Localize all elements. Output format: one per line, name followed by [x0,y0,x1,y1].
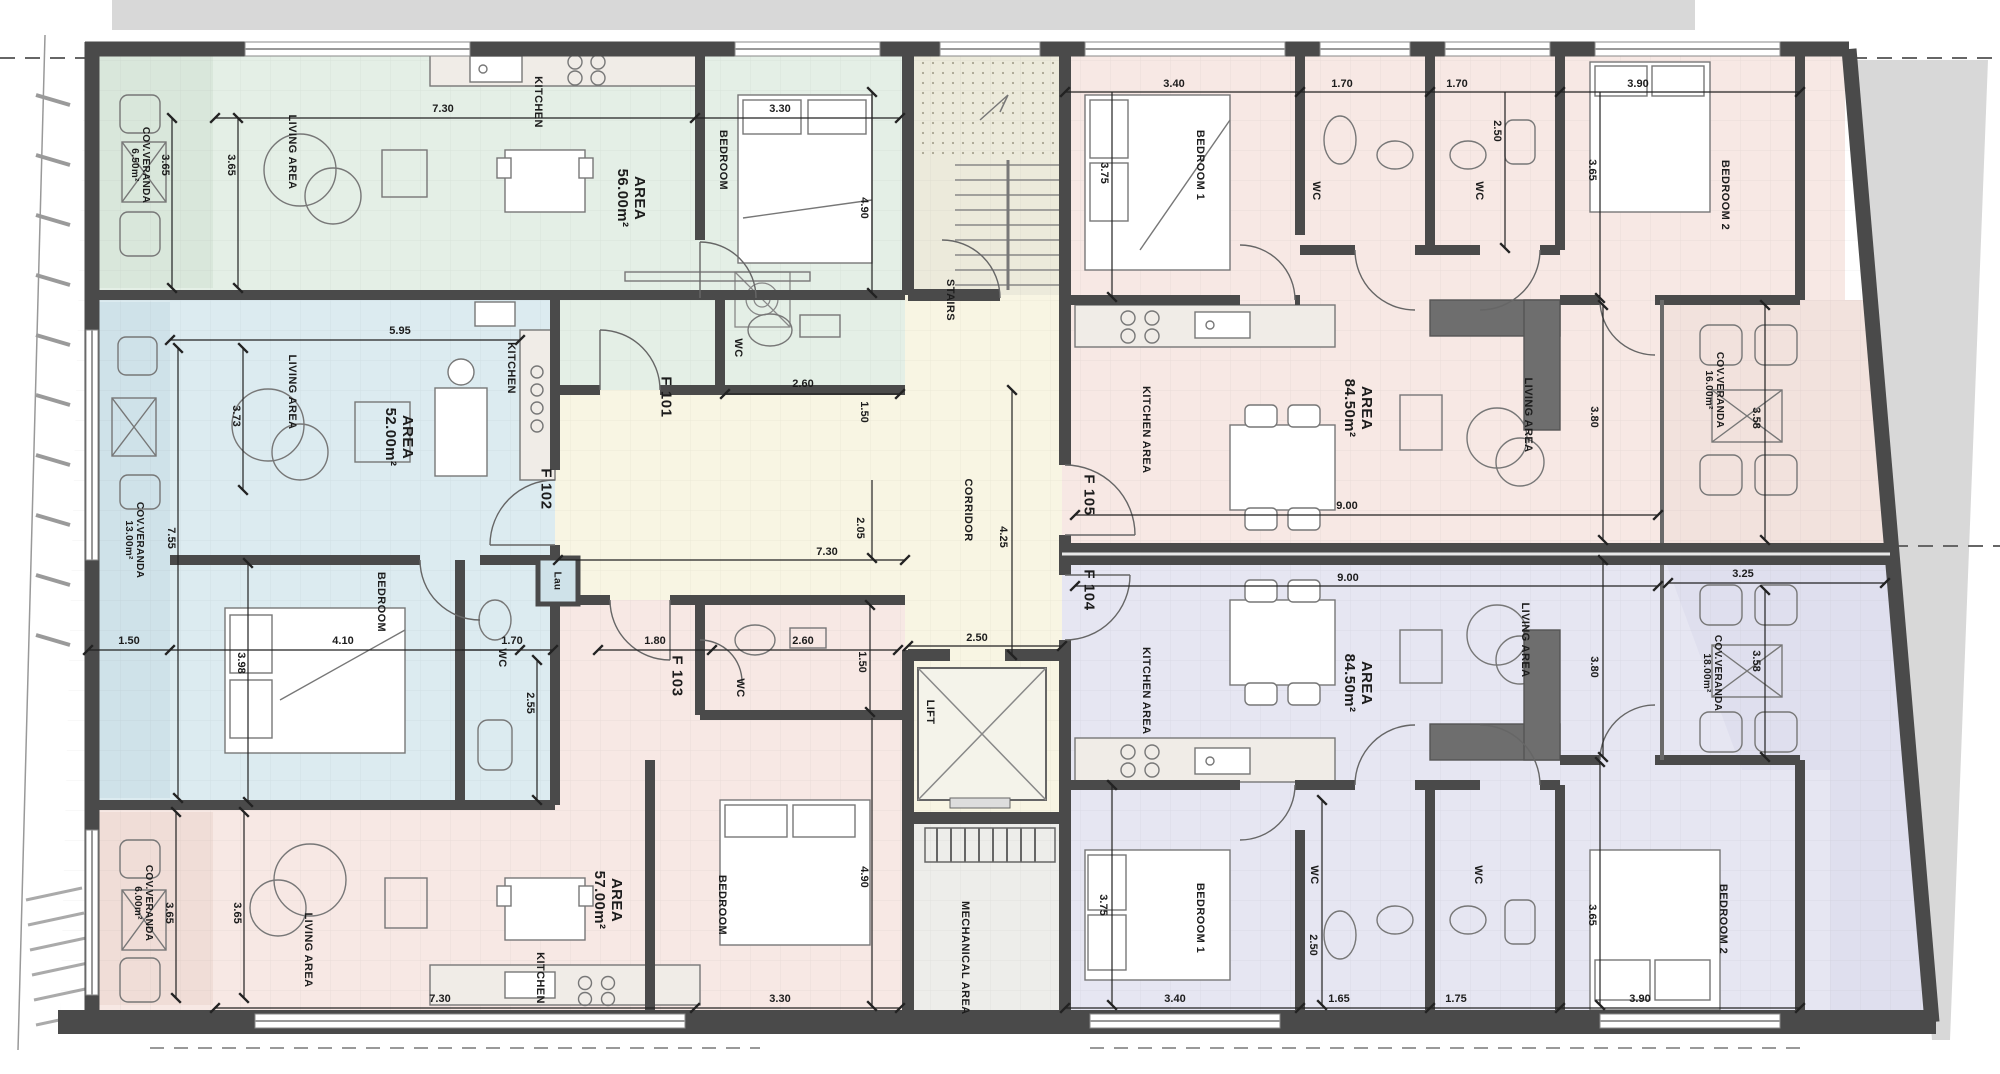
f103-living-label: LIVING AREA [302,913,314,988]
f103-veranda-label: COV.VERANDA 6.00m² [132,865,154,941]
f101-dim-veranda-height: 3.65 [159,154,171,175]
f102-kitchen-label: KITCHEN [505,342,517,394]
f105-living-label: LIVING AREA [1522,378,1534,453]
f104-wc2-label: WC [1472,865,1484,884]
f103-flat-id: F 103 [668,655,685,696]
f104-dim-bedroom2-height: 3.65 [1586,904,1598,925]
f105-flat-id: F 105 [1080,474,1097,515]
f101-living-label: LIVING AREA [286,115,298,190]
bed-f101 [738,95,872,263]
f103-kitchen-label: KITCHEN [534,952,546,1004]
f105-wc1-label: WC [1310,181,1322,200]
bed-f103 [720,800,870,945]
f105-dim-living-width: 9.00 [1336,500,1357,512]
f102-dim-kitchen-width: 5.95 [389,325,410,337]
f104-area-label: AREA 84.50m² [1340,654,1374,713]
f101-veranda-label: COV.VERANDA 6.50m² [129,127,151,203]
lift-detail [918,668,1046,808]
f103-dim-bedroom-width: 3.30 [769,993,790,1005]
corridor-label: CORRIDOR [962,478,974,541]
f103-dim-wc-height: 1.50 [856,651,868,672]
f102-dim-wc-width: 1.70 [501,635,522,647]
f102-wc-label: WC [496,648,508,667]
f103-dim-living-height: 3.65 [231,902,243,923]
f104-dim-wc2-width: 1.75 [1445,993,1466,1005]
f101-dim-wc-height: 1.50 [858,401,870,422]
f102-dim-veranda-width: 1.50 [118,635,139,647]
f104-dim-bedroom1-width: 3.40 [1164,993,1185,1005]
f103-dim-wc-width: 2.60 [792,635,813,647]
corridor-dim-height: 4.25 [997,526,1009,547]
f101-dim-bedroom-height: 4.90 [858,197,870,218]
f105-bedroom1-label: BEDROOM 1 [1194,130,1206,200]
f102-dim-veranda-height: 7.55 [165,527,177,548]
f105-area-label: AREA 84.50m² [1340,379,1374,438]
f102-living-label: LIVING AREA [286,355,298,430]
f105-kitchen-label: KITCHEN AREA [1140,386,1152,444]
f105-dim-bedroom1-width: 3.40 [1163,78,1184,90]
floor-plan-canvas: COV.VERANDA 6.50m² 3.65 3.65 LIVING AREA… [0,0,2000,1074]
f103-area-label: AREA 57.00m² [590,871,624,930]
f104-dim-living-height: 3.80 [1588,656,1600,677]
f104-kitchen-label: KITCHEN AREA [1140,647,1152,705]
f103-wc-label: WC [734,678,746,697]
f101-dim-bedroom-width: 3.30 [769,103,790,115]
f101-dim-living-height: 3.65 [225,154,237,175]
f103-dim-living-width: 7.30 [429,993,450,1005]
f104-dim-bedroom1-height: 3.75 [1097,894,1109,915]
f102-dim-bedroom-height: 3.98 [235,652,247,673]
lift-label: LIFT [924,700,936,725]
f101-wc-label: WC [732,338,744,357]
mechanical-area-label: MECHANICAL AREA [959,901,971,989]
f105-veranda-label: COV.VERANDA 16.00m² [1703,352,1725,428]
bed-f104-bedroom2 [1590,850,1720,1010]
f101-dim-wc-width: 2.60 [792,378,813,390]
f103-dim-veranda-height: 3.65 [163,902,175,923]
f105-dim-wc1-width: 1.70 [1331,78,1352,90]
corridor-dim-side: 2.05 [854,517,866,538]
bed-f105-bedroom2 [1590,62,1710,212]
f104-living-label: LIVING AREA [1519,603,1531,678]
f103-bedroom-label: BEDROOM [716,875,728,935]
f102-area-label: AREA 52.00m² [381,408,415,467]
corridor-dim-width: 7.30 [816,546,837,558]
f101-dim-living-width: 7.30 [432,103,453,115]
f104-dim-wc-height: 2.50 [1307,934,1319,955]
f101-area-label: AREA 56.00m² [613,169,647,228]
f104-dim-bedroom2-width: 3.90 [1629,993,1650,1005]
f104-bedroom1-label: BEDROOM 1 [1194,883,1206,953]
f104-veranda-label: COV.VERANDA 18.00m² [1701,635,1723,711]
lift-dim-width: 2.50 [966,632,987,644]
f104-flat-id: F 104 [1080,569,1097,610]
f104-dim-veranda-height: 3.58 [1750,650,1762,671]
f104-dim-wc1-width: 1.65 [1328,993,1349,1005]
f102-dim-living-height: 3.73 [230,405,242,426]
f105-dim-living-height: 3.80 [1588,406,1600,427]
f103-dim-hall-width: 1.80 [644,635,665,647]
f104-wc1-label: WC [1308,865,1320,884]
f102-dim-bedroom-width: 4.10 [332,635,353,647]
f105-dim-wc-height: 2.50 [1491,120,1503,141]
f101-bedroom-label: BEDROOM [717,130,729,190]
f104-dim-living-width: 9.00 [1337,572,1358,584]
f105-dim-veranda-height: 3.58 [1750,407,1762,428]
f105-wc2-label: WC [1473,181,1485,200]
f105-dim-bedroom1-height: 3.75 [1098,162,1110,183]
f102-laundry-label: Lau [551,572,562,591]
f102-veranda-label: COV.VERANDA 13.00m² [123,502,145,578]
f105-dim-bedroom2-height: 3.65 [1586,159,1598,180]
stairs-label: STAIRS [944,279,956,321]
f104-dim-veranda-width: 3.25 [1732,568,1753,580]
f101-flat-id: F 101 [657,376,674,417]
f105-dim-bedroom2-width: 3.90 [1627,78,1648,90]
f102-dim-wc-height: 2.55 [524,692,536,713]
f104-bedroom2-label: BEDROOM 2 [1717,884,1729,954]
f103-dim-bedroom-height: 4.90 [858,866,870,887]
f102-bedroom-label: BEDROOM [375,572,387,632]
f105-dim-wc2-width: 1.70 [1446,78,1467,90]
f101-kitchen-label: KITCHEN [532,76,544,128]
f102-flat-id: F 102 [537,468,554,509]
f105-bedroom2-label: BEDROOM 2 [1719,160,1731,230]
